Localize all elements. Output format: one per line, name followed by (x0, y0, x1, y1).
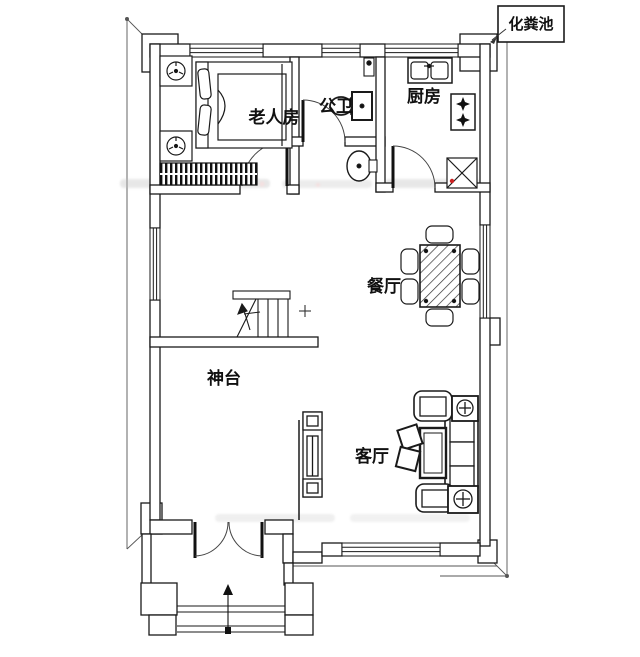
nightstand-lamp (160, 131, 192, 161)
armchair (414, 391, 452, 421)
porch-column (141, 583, 177, 615)
tv-cabinet (303, 412, 322, 497)
bathroom-label: 公卫 (319, 97, 353, 116)
window-bath-north (322, 44, 360, 57)
window-living-south (342, 543, 440, 556)
dining-chair (462, 249, 479, 274)
coffee-table (420, 428, 446, 478)
porch-column-footing (149, 615, 176, 635)
side-table (396, 447, 420, 471)
septic-tank-callout: 化粪池 (460, 6, 564, 71)
kitchen-sink (408, 58, 452, 83)
window-west (150, 228, 160, 300)
dining-chair (401, 249, 418, 274)
living-room-label: 客厅 (354, 446, 389, 466)
red-marker-dot (450, 179, 454, 183)
window-kitchen-north (385, 44, 458, 57)
dining-set (401, 226, 479, 326)
wall-fixture (364, 58, 374, 76)
floor-plan-svg: 化粪池 (0, 0, 640, 657)
end-table-lamp (452, 396, 478, 421)
stairs-up-arrow (238, 304, 247, 314)
dining-chair (401, 279, 418, 304)
dining-chair (426, 226, 453, 243)
dining-table (420, 245, 460, 307)
kitchen-label: 厨房 (407, 86, 441, 106)
porch-column-footing (285, 615, 313, 635)
wash-basin (347, 151, 377, 181)
window-bedroom-north (190, 44, 263, 57)
kitchen-fixtures (408, 58, 477, 188)
dining-label: 餐厅 (367, 276, 401, 296)
refrigerator (447, 158, 477, 188)
window-dining-east (480, 225, 490, 318)
dining-chair (426, 309, 453, 326)
nightstand-lamp (160, 56, 192, 86)
living-room-set (303, 391, 478, 513)
sofa-three-seat (445, 412, 478, 496)
entrance-porch (141, 583, 313, 635)
dining-chair (462, 279, 479, 304)
staircase (233, 291, 311, 337)
floor-plan-page: 化粪池 (0, 0, 640, 657)
door-entrance-double (195, 522, 262, 558)
altar-label: 神台 (207, 368, 241, 388)
septic-tank-label: 化粪池 (508, 15, 553, 33)
boundary-corner-dot (505, 574, 509, 578)
elderly-room-label: 老人房 (248, 107, 300, 127)
end-table-lamp (448, 486, 478, 513)
stair-cross-mark (299, 305, 311, 317)
stove (451, 94, 475, 130)
porch-column (285, 583, 313, 615)
bed (196, 62, 292, 148)
